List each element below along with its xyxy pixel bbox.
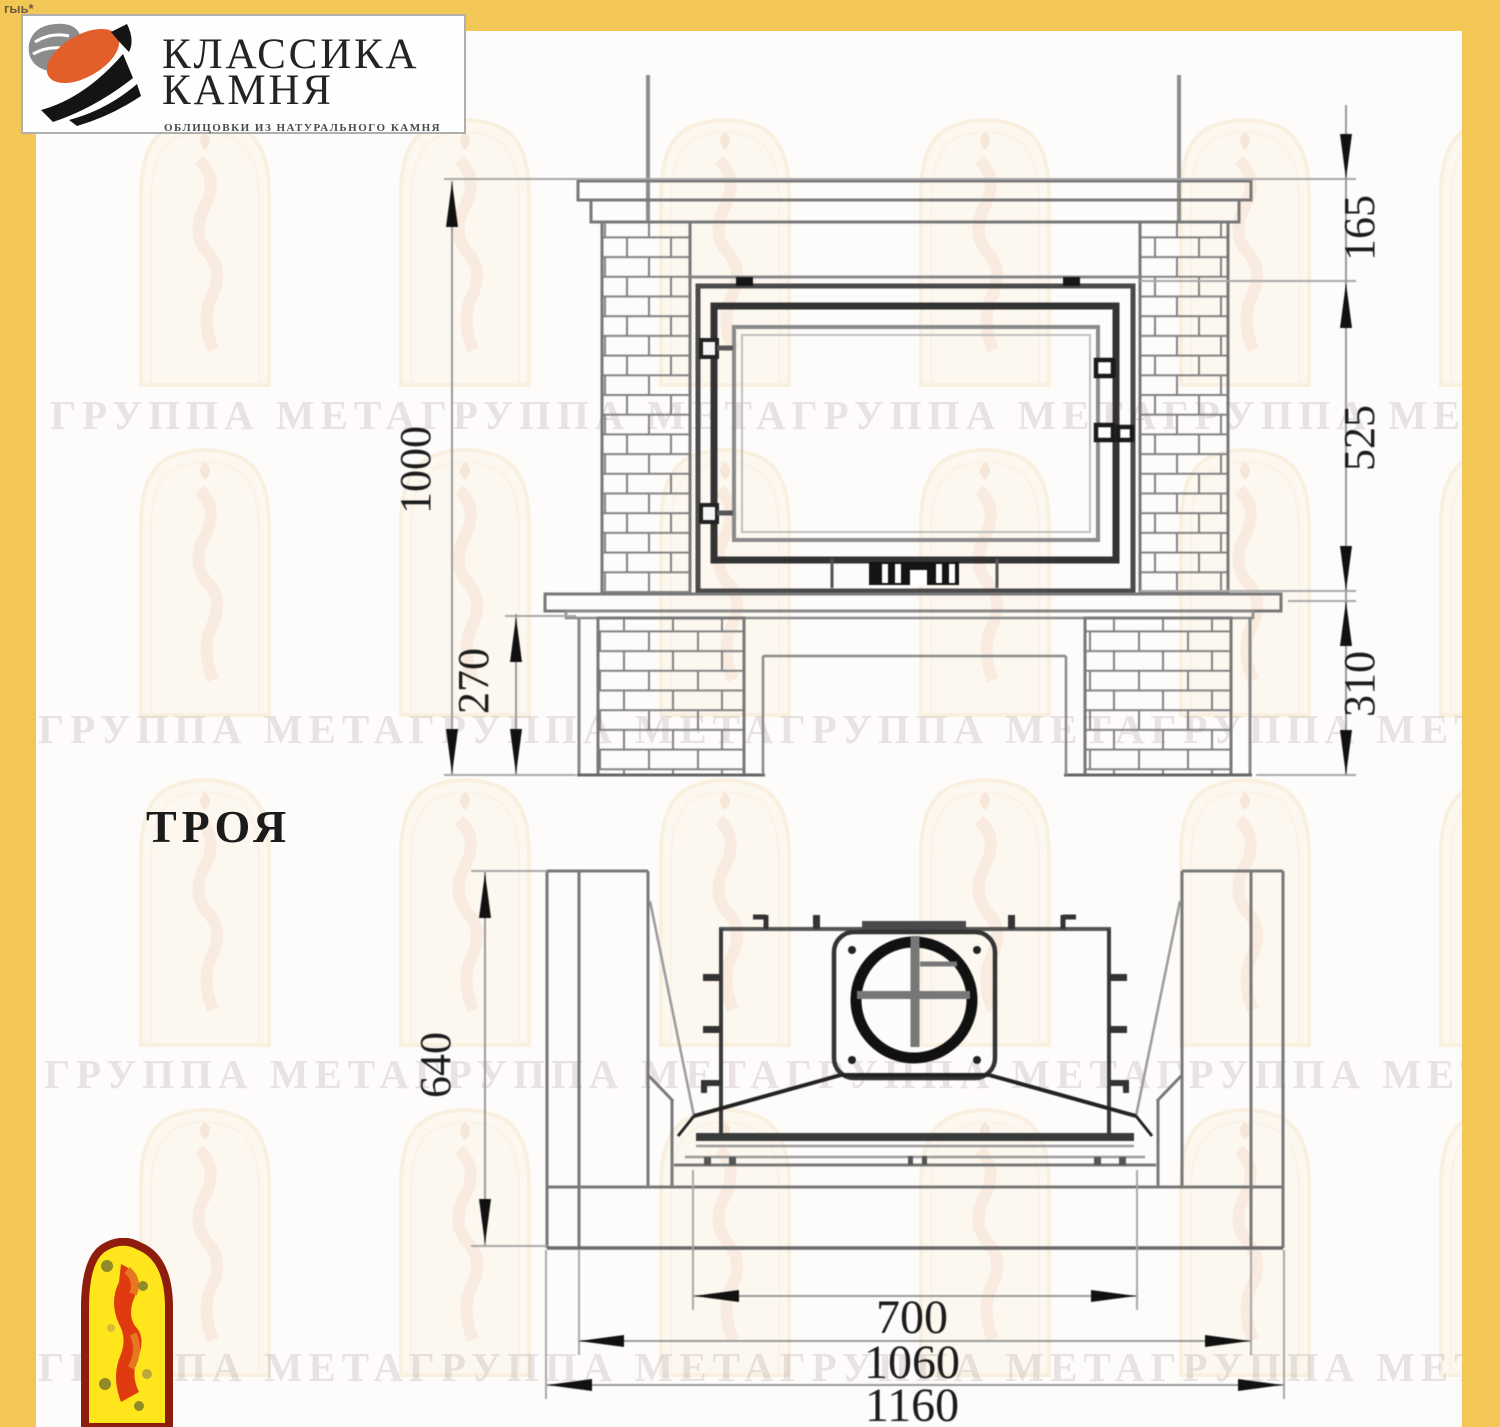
svg-text:1160: 1160 [865,1379,959,1427]
svg-text:640: 640 [411,1032,460,1098]
svg-text:310: 310 [1335,651,1384,717]
svg-text:165: 165 [1335,195,1384,261]
svg-text:270: 270 [449,648,498,714]
svg-text:1000: 1000 [391,426,440,514]
svg-text:525: 525 [1335,405,1384,471]
